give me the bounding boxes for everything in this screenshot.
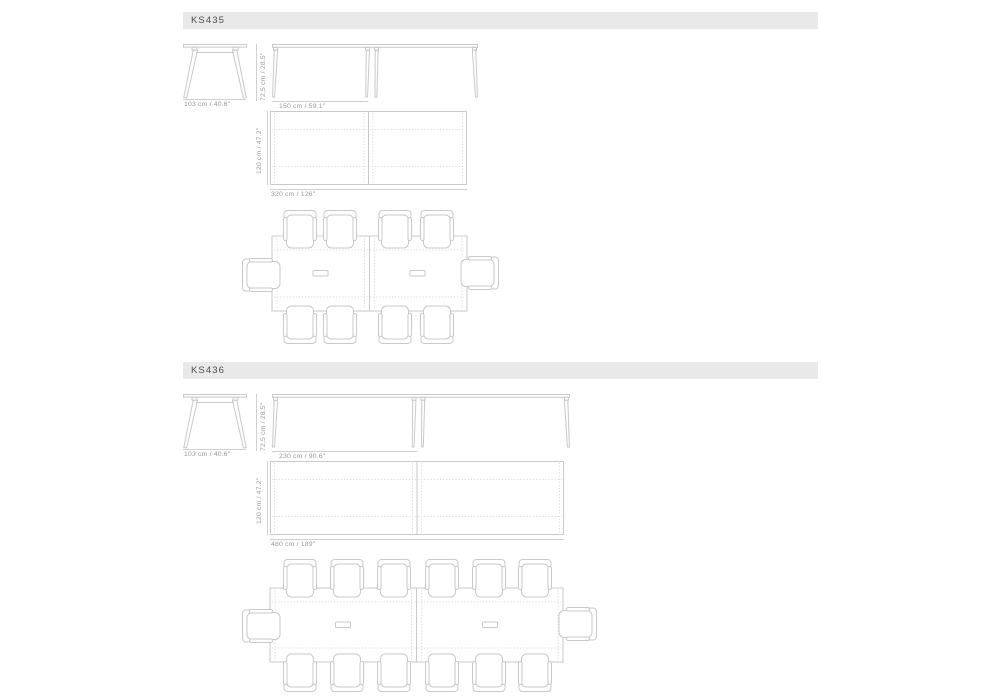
- product-header: KS435: [183, 12, 818, 29]
- product-code: KS436: [191, 365, 225, 376]
- table-leg: [366, 50, 370, 97]
- chair: [559, 608, 597, 641]
- leg-connector: [233, 47, 238, 50]
- side-elevation-drawing: [272, 394, 570, 451]
- table-leg: [412, 400, 416, 447]
- total-length-dimension-label: 480 cm / 189": [271, 541, 315, 549]
- table-top: [273, 45, 478, 48]
- product-code: KS435: [191, 15, 225, 26]
- dimension-line: [272, 451, 417, 452]
- leg-connector: [421, 397, 425, 400]
- table-top: [273, 395, 570, 398]
- dimension-line: [256, 394, 257, 451]
- chair: [426, 654, 459, 692]
- section-ks436: KS436 103 cm / 40.6" 72,5 cm / 28.5": [0, 350, 1000, 700]
- table-leg: [375, 50, 378, 97]
- chair: [331, 560, 364, 598]
- depth-dimension-label: 120 cm / 47.2": [256, 128, 264, 174]
- dimension-line: [183, 99, 246, 100]
- table-leg: [422, 400, 425, 447]
- end-elevation-drawing: [183, 394, 247, 451]
- chair: [461, 257, 499, 290]
- dimension-line: [270, 189, 467, 190]
- module-length-dimension-label: 230 cm / 90.6": [279, 453, 325, 461]
- chair: [379, 306, 412, 344]
- dimension-line: [270, 539, 564, 540]
- leg-connector: [274, 47, 278, 50]
- dimension-line: [183, 449, 246, 450]
- height-dimension-label: 72,5 cm / 28.5": [260, 403, 268, 451]
- leg-connector: [366, 47, 370, 50]
- chair: [421, 211, 454, 249]
- seating-plan-drawing: [237, 208, 497, 345]
- chair: [426, 560, 459, 598]
- table-leg: [184, 400, 198, 448]
- side-elevation-drawing: [272, 44, 478, 101]
- table-leg: [232, 400, 246, 448]
- dimension-line: [267, 111, 268, 185]
- chair: [519, 654, 552, 692]
- chair: [378, 654, 411, 692]
- chair: [284, 306, 317, 344]
- height-dimension-label: 72,5 cm / 28.5": [260, 53, 268, 101]
- table-leg: [273, 50, 278, 97]
- chair: [243, 610, 281, 643]
- table-leg: [472, 50, 477, 97]
- leg-connector: [192, 47, 197, 50]
- end-elevation-drawing: [183, 44, 247, 101]
- table-leg: [232, 50, 246, 98]
- width-dimension-label: 103 cm / 40.6": [184, 101, 230, 109]
- leg-connector: [375, 47, 379, 50]
- leg-connector: [192, 397, 197, 400]
- product-header: KS436: [183, 362, 818, 379]
- dimension-line: [267, 461, 268, 535]
- dimension-line: [272, 101, 368, 102]
- module-length-dimension-label: 150 cm / 59.1": [279, 103, 325, 111]
- width-dimension-label: 103 cm / 40.6": [184, 451, 230, 459]
- chair: [243, 259, 281, 292]
- chair: [284, 654, 317, 692]
- leg-connector: [274, 397, 278, 400]
- chair: [324, 306, 357, 344]
- table-leg: [273, 400, 278, 447]
- chair: [473, 560, 506, 598]
- chair: [284, 211, 317, 249]
- chair: [473, 654, 506, 692]
- leg-connector: [233, 397, 238, 400]
- plan-view-drawing: [270, 111, 467, 185]
- leg-connector: [473, 47, 477, 50]
- seating-plan-drawing: [237, 556, 599, 694]
- leg-connector: [565, 397, 569, 400]
- leg-connector: [412, 397, 416, 400]
- chair: [284, 560, 317, 598]
- plan-view-drawing: [270, 461, 564, 535]
- table-leg: [564, 400, 569, 447]
- depth-dimension-label: 120 cm / 47.2": [256, 478, 264, 524]
- total-length-dimension-label: 320 cm / 126": [271, 191, 315, 199]
- section-ks435: KS435 103 cm / 40.6" 72,5 cm / 28.5": [0, 0, 1000, 350]
- chair: [519, 560, 552, 598]
- spec-sheet: KS435 103 cm / 40.6" 72,5 cm / 28.5": [0, 0, 1000, 700]
- chair: [379, 211, 412, 249]
- table-leg: [184, 50, 198, 98]
- chair: [331, 654, 364, 692]
- dimension-line: [256, 44, 257, 101]
- chair: [324, 211, 357, 249]
- chair: [378, 560, 411, 598]
- chair: [421, 306, 454, 344]
